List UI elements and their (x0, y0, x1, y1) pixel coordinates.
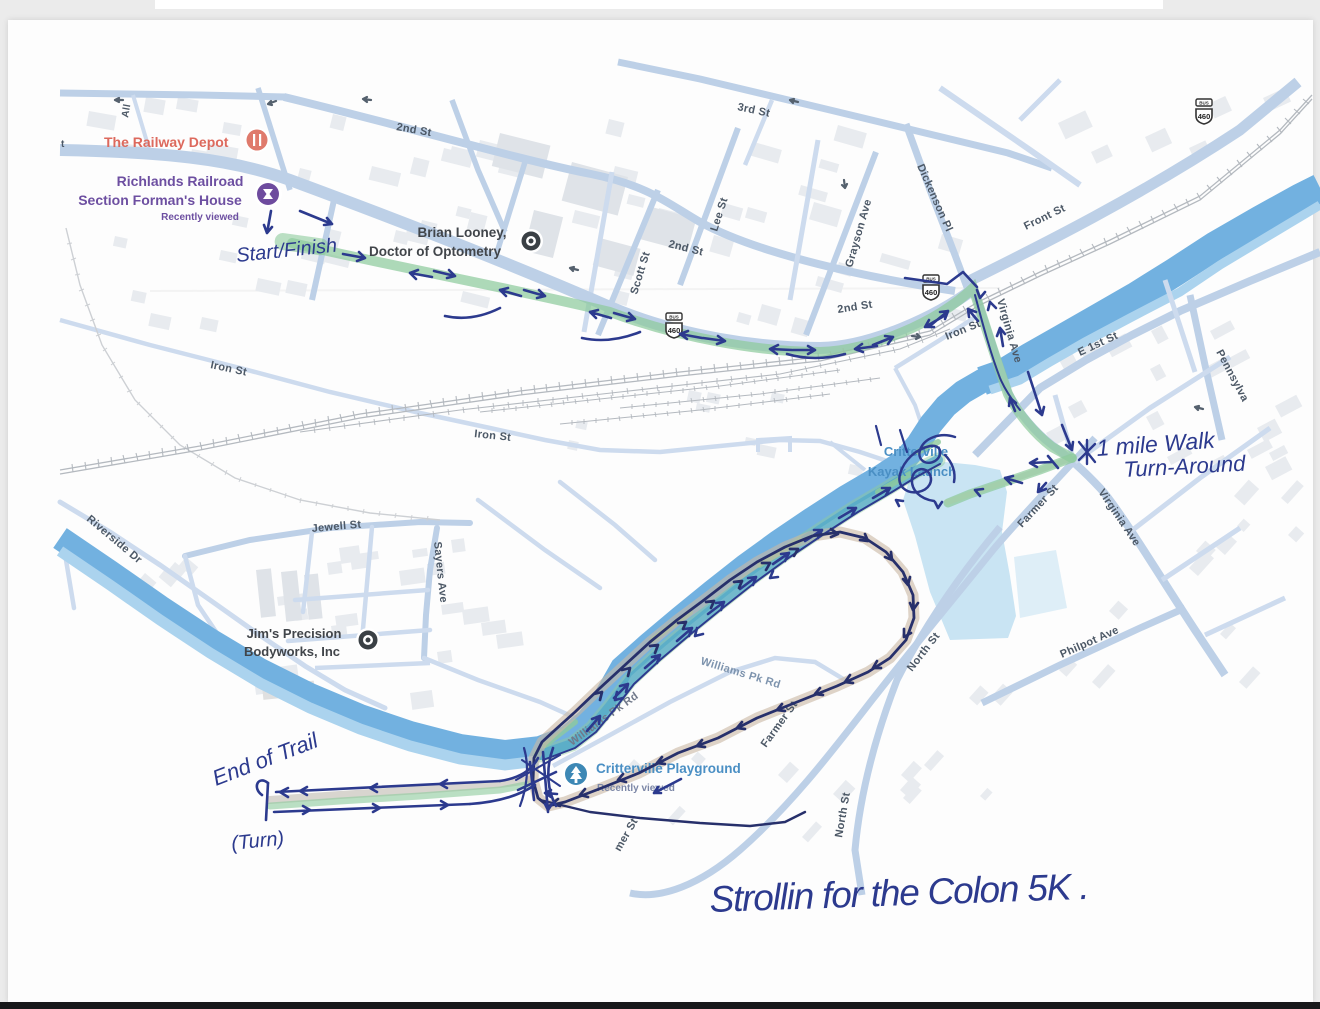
svg-text:Recently viewed: Recently viewed (161, 212, 239, 223)
svg-text:All: All (120, 103, 133, 118)
svg-text:(Turn): (Turn) (230, 828, 285, 855)
svg-text:Section Forman's House: Section Forman's House (78, 192, 242, 208)
svg-text:t: t (61, 139, 65, 150)
svg-text:mer St: mer St (612, 816, 640, 853)
svg-text:Jewell St: Jewell St (311, 519, 362, 535)
svg-text:Virginia Ave: Virginia Ave (1096, 487, 1143, 549)
svg-text:Critterville Playground: Critterville Playground (596, 761, 741, 776)
svg-text:2nd St: 2nd St (395, 121, 432, 139)
svg-text:Brian Looney,: Brian Looney, (417, 225, 506, 240)
svg-text:460: 460 (668, 326, 681, 335)
svg-text:Front St: Front St (1022, 202, 1067, 232)
svg-text:Bodyworks, Inc: Bodyworks, Inc (244, 644, 340, 659)
svg-text:Iron St: Iron St (944, 318, 983, 343)
svg-text:BUS: BUS (1199, 101, 1209, 106)
svg-text:BUS: BUS (669, 315, 679, 320)
svg-text:Iron St: Iron St (474, 428, 512, 444)
svg-text:Turn-Around: Turn-Around (1123, 451, 1247, 482)
svg-text:North St: North St (833, 791, 853, 838)
svg-text:Iron St: Iron St (209, 359, 248, 378)
svg-text:460: 460 (925, 288, 938, 297)
svg-text:Strollin for the Colon 5K .: Strollin for the Colon 5K . (709, 866, 1089, 920)
svg-text:Doctor of Optometry: Doctor of Optometry (369, 244, 501, 259)
svg-text:The Railway Depot: The Railway Depot (104, 134, 229, 150)
svg-text:2nd St: 2nd St (837, 299, 874, 316)
svg-text:Richlands Railroad: Richlands Railroad (117, 173, 244, 189)
svg-text:460: 460 (1198, 112, 1211, 121)
svg-text:Jim's Precision: Jim's Precision (247, 626, 342, 641)
svg-text:Dickenson Pl: Dickenson Pl (914, 162, 955, 233)
svg-text:3rd St: 3rd St (736, 101, 771, 120)
